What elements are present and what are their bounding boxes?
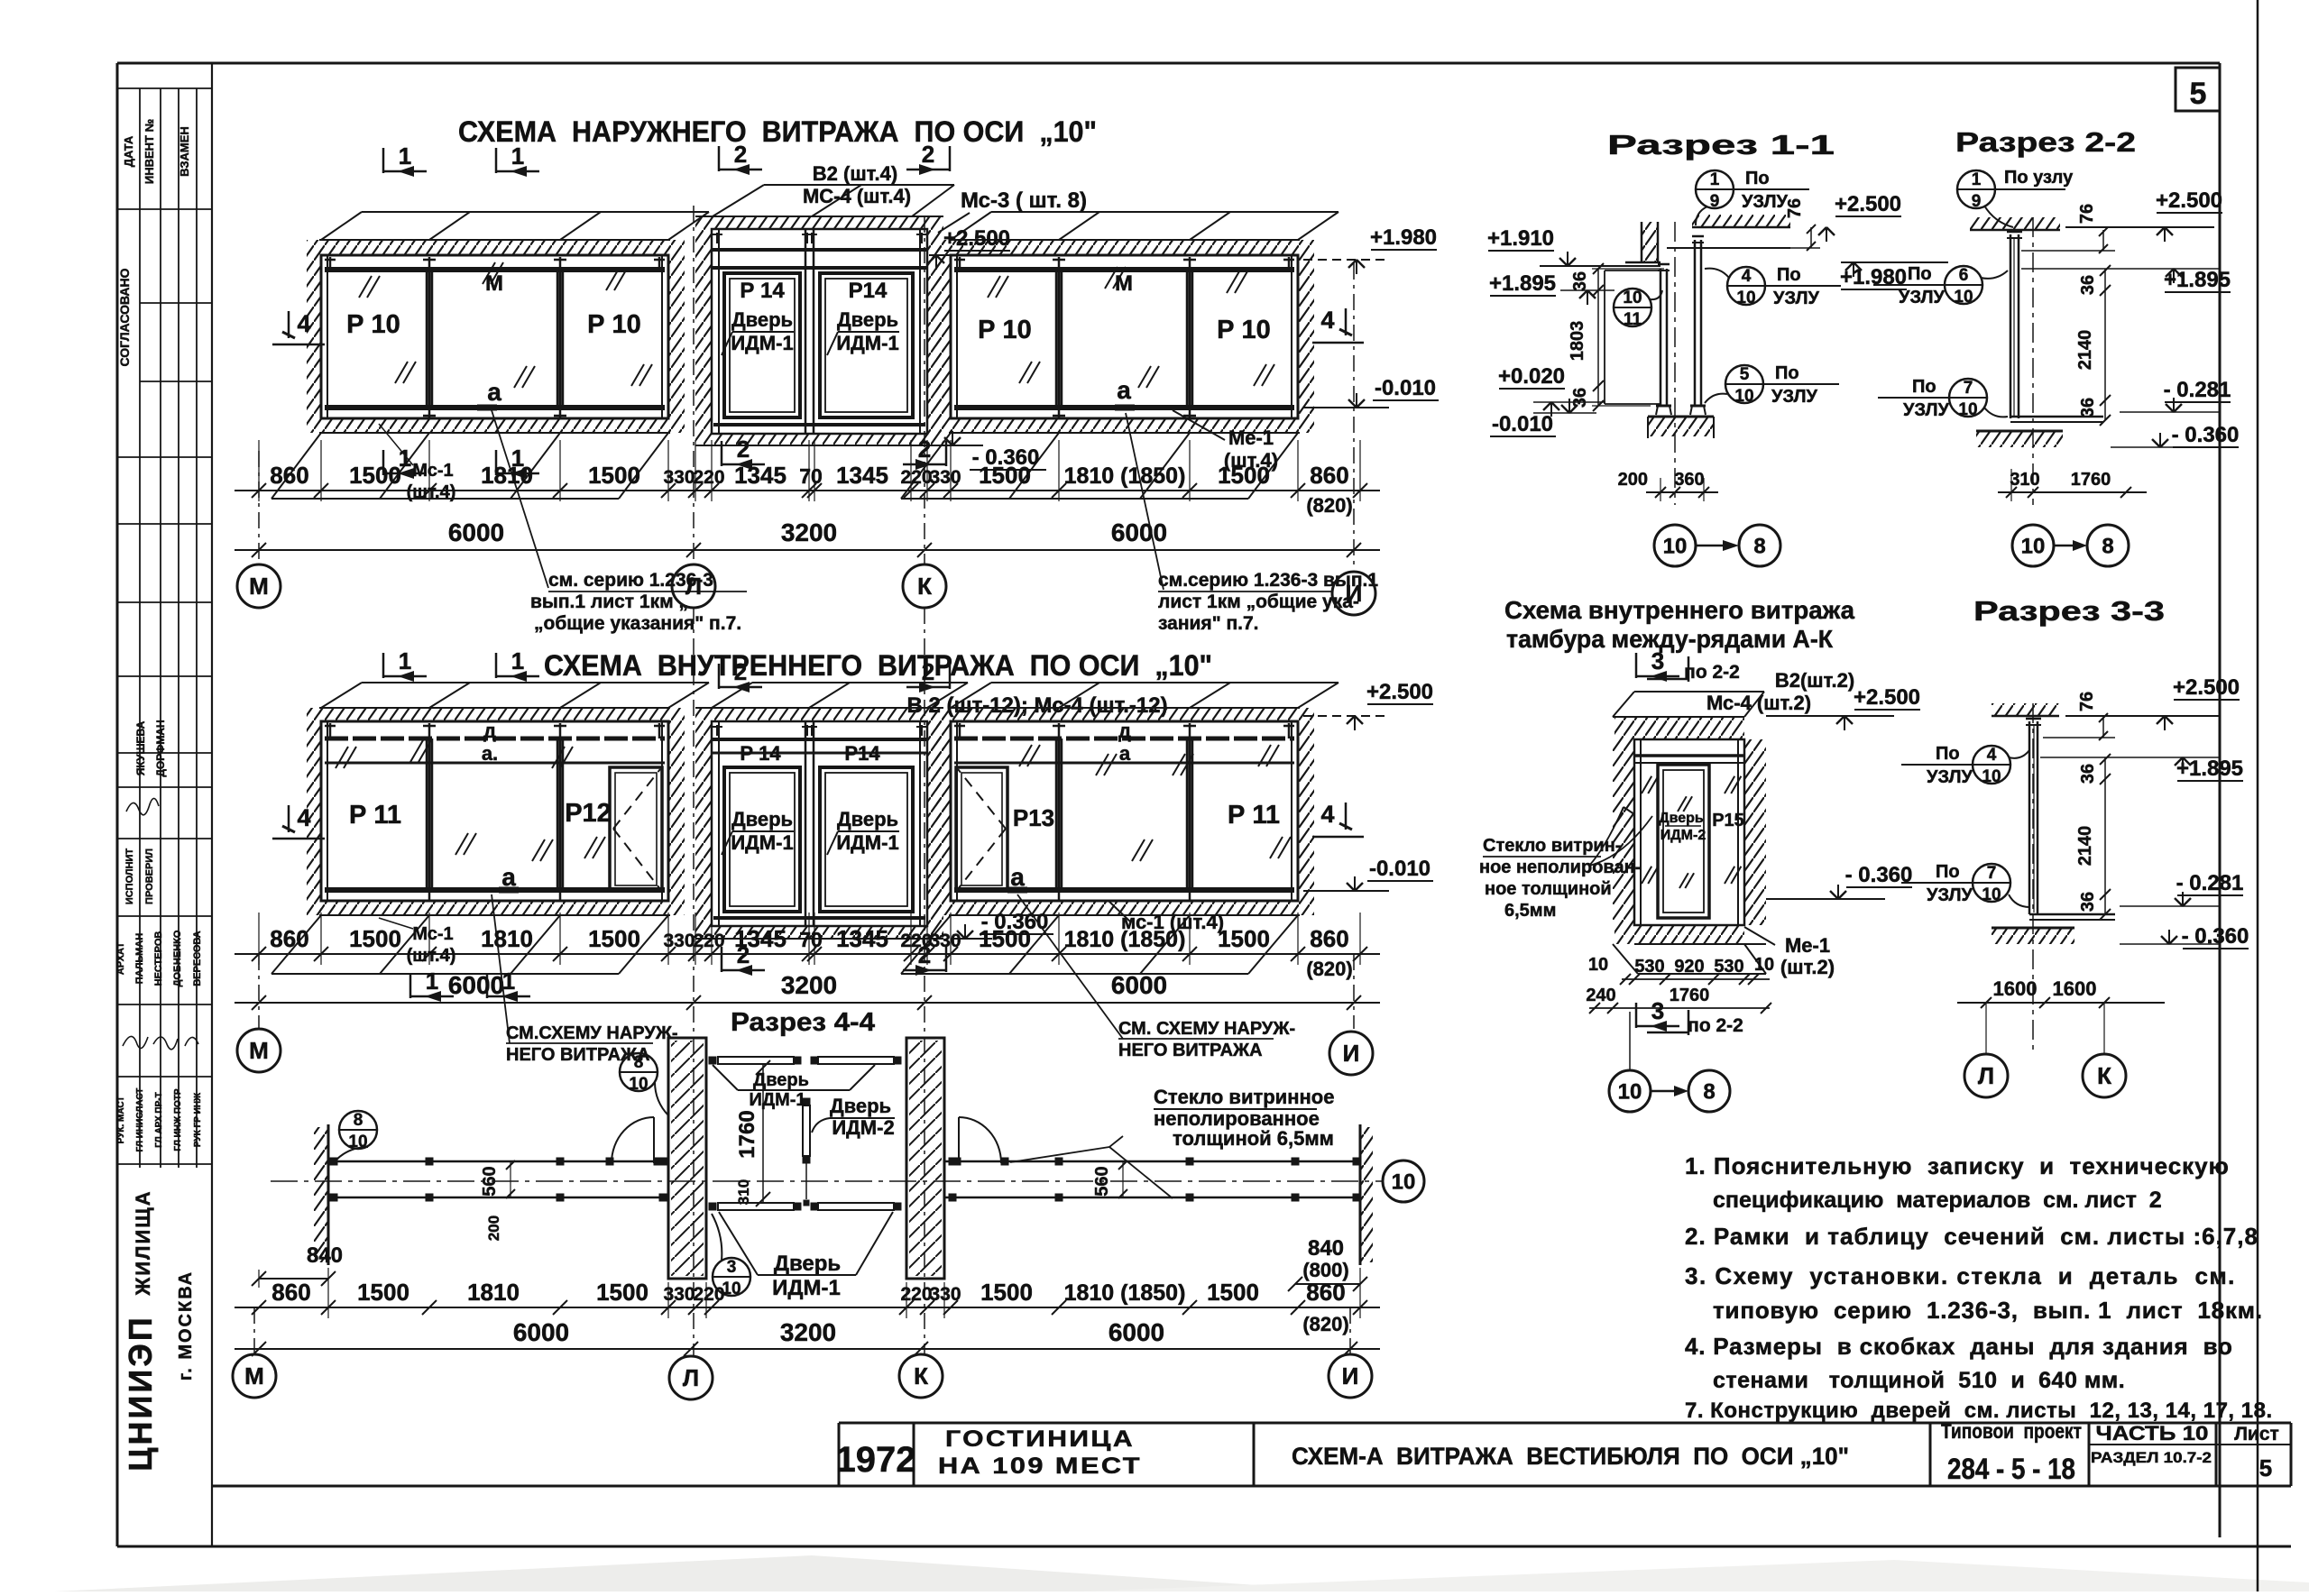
svg-text:ИДМ-1: ИДМ-1 <box>731 332 793 354</box>
svg-text:200: 200 <box>1618 470 1648 490</box>
svg-text:Мс-3 ( шт. 8): Мс-3 ( шт. 8) <box>961 188 1087 213</box>
svg-text:10: 10 <box>1618 1079 1642 1104</box>
svg-text:МС-4 (шт.4): МС-4 (шт.4) <box>803 185 911 207</box>
svg-text:10: 10 <box>1392 1169 1416 1194</box>
svg-text:ИДМ-2: ИДМ-2 <box>1660 828 1706 843</box>
svg-text:Схема внутреннего витража: Схема внутреннего витража <box>1504 596 1854 624</box>
svg-text:д: д <box>1118 720 1131 742</box>
svg-text:СХЕМА НАРУЖНЕГО ВИТРАЖА ПО: СХЕМА НАРУЖНЕГО ВИТРАЖА ПО ОСИ „10" <box>458 115 1097 148</box>
svg-text:Р 10: Р 10 <box>346 310 400 339</box>
svg-text:Типовои проект: Типовои проект <box>1941 1419 2082 1443</box>
svg-text:1500: 1500 <box>980 1279 1033 1306</box>
svg-text:Л: Л <box>683 1364 699 1391</box>
svg-text:+2.500: +2.500 <box>1835 192 1901 216</box>
svg-text:По: По <box>1775 363 1799 383</box>
svg-text:220: 220 <box>693 1284 724 1305</box>
svg-text:СХЕМ-А ВИТРАЖА ВЕСТИБЮЛЯ ПО: СХЕМ-А ВИТРАЖА ВЕСТИБЮЛЯ ПО ОСИ „10" <box>1292 1443 1849 1470</box>
svg-text:840: 840 <box>307 1243 343 1268</box>
svg-text:лист 1км „общие ука-: лист 1км „общие ука- <box>1158 592 1359 612</box>
svg-text:по 2-2: по 2-2 <box>1684 662 1740 683</box>
svg-text:3200: 3200 <box>781 971 837 999</box>
svg-text:1500: 1500 <box>1207 1279 1259 1306</box>
svg-text:4: 4 <box>1320 307 1334 334</box>
svg-text:1500: 1500 <box>349 925 401 952</box>
svg-text:ИНВЕНТ №: ИНВЕНТ № <box>143 119 156 184</box>
svg-text:860: 860 <box>271 1279 310 1306</box>
svg-text:ВЗАМЕН: ВЗАМЕН <box>178 126 191 177</box>
svg-text:10: 10 <box>1588 955 1608 975</box>
svg-text:1. Пояснительную записку и: 1. Пояснительную записку и техническую <box>1685 1152 2230 1179</box>
svg-text:220: 220 <box>900 467 932 488</box>
svg-text:9: 9 <box>1972 192 1982 211</box>
svg-text:УЗЛУ: УЗЛУ <box>1771 387 1818 407</box>
svg-text:В2 (шт.4): В2 (шт.4) <box>813 162 897 185</box>
svg-text:1500: 1500 <box>1218 925 1270 952</box>
svg-text:СОГЛАСОВАНО: СОГЛАСОВАНО <box>117 268 132 366</box>
svg-text:+2.500: +2.500 <box>1854 685 1920 710</box>
svg-text:Дверь: Дверь <box>753 1070 809 1090</box>
svg-text:По узлу: По узлу <box>2004 168 2074 188</box>
svg-text:ИСПОЛНИТ: ИСПОЛНИТ <box>124 848 135 905</box>
svg-text:6000: 6000 <box>448 518 504 546</box>
svg-text:1345: 1345 <box>734 462 787 489</box>
svg-text:1810: 1810 <box>481 462 533 489</box>
svg-text:по 2-2: по 2-2 <box>1688 1015 1743 1036</box>
svg-text:стенами толщиной 510 и 64: стенами толщиной 510 и 640 мм. <box>1713 1368 2125 1393</box>
svg-text:И: И <box>1343 1040 1360 1067</box>
svg-text:330: 330 <box>663 467 695 488</box>
svg-text:вып.1 лист 1км „: вып.1 лист 1км „ <box>530 592 688 612</box>
svg-text:1810 (1850): 1810 (1850) <box>1064 1280 1186 1306</box>
svg-text:310: 310 <box>735 1179 752 1205</box>
svg-text:РУК. МАСТ: РУК. МАСТ <box>116 1096 126 1144</box>
svg-text:Р14: Р14 <box>849 279 888 303</box>
svg-text:920: 920 <box>1674 957 1704 977</box>
svg-text:Ме-1: Ме-1 <box>1228 427 1274 449</box>
svg-text:РАЗДЕЛ 10.7-2: РАЗДЕЛ 10.7-2 <box>2091 1449 2212 1466</box>
svg-text:6000: 6000 <box>448 971 504 999</box>
svg-text:ДОРФМАН: ДОРФМАН <box>154 720 167 776</box>
svg-text:-0.010: -0.010 <box>1369 857 1430 881</box>
svg-text:+2.500: +2.500 <box>2156 188 2222 213</box>
svg-text:М: М <box>249 1037 269 1064</box>
svg-text:тамбура между-рядами А-К: тамбура между-рядами А-К <box>1506 625 1834 653</box>
svg-text:10: 10 <box>722 1280 741 1298</box>
svg-text:ВЕРЕСОВА: ВЕРЕСОВА <box>192 931 203 986</box>
svg-text:И: И <box>1346 580 1363 607</box>
svg-text:Разрез 3-3: Разрез 3-3 <box>1973 595 2165 627</box>
svg-text:ПРОВЕРИЛ: ПРОВЕРИЛ <box>144 848 155 904</box>
svg-text:4: 4 <box>297 310 310 337</box>
svg-text:ИДМ-2: ИДМ-2 <box>832 1116 894 1139</box>
svg-text:СМ.СХЕМУ НАРУЖ-: СМ.СХЕМУ НАРУЖ- <box>506 1023 678 1043</box>
svg-text:1500: 1500 <box>588 925 640 952</box>
svg-text:6000: 6000 <box>513 1318 569 1346</box>
svg-text:76: 76 <box>2077 692 2097 711</box>
svg-text:Р14: Р14 <box>844 742 880 765</box>
svg-text:10: 10 <box>1736 289 1755 307</box>
svg-text:1803: 1803 <box>1568 321 1587 362</box>
svg-text:220: 220 <box>693 931 724 951</box>
svg-text:а: а <box>487 378 501 406</box>
svg-text:(шт.4): (шт.4) <box>407 946 456 966</box>
svg-text:а: а <box>501 863 516 891</box>
svg-text:Мс-1: Мс-1 <box>412 924 453 944</box>
svg-text:(820): (820) <box>1306 494 1352 517</box>
svg-text:5: 5 <box>2190 77 2207 111</box>
svg-text:По: По <box>1745 169 1770 188</box>
svg-text:М: М <box>244 1362 264 1390</box>
svg-text:2: 2 <box>734 658 747 685</box>
svg-text:10: 10 <box>1958 400 1977 419</box>
svg-text:4: 4 <box>297 804 310 831</box>
svg-text:1810 (1850): 1810 (1850) <box>1064 463 1186 489</box>
svg-text:ГЛ АРХ ПР-Т: ГЛ АРХ ПР-Т <box>154 1092 164 1147</box>
svg-text:Л: Л <box>685 573 702 600</box>
svg-text:1500: 1500 <box>979 925 1031 952</box>
svg-text:7: 7 <box>1964 379 1973 398</box>
svg-text:г. МОСКВА: г. МОСКВА <box>176 1270 196 1380</box>
svg-text:Мс-4 (шт.2): Мс-4 (шт.2) <box>1706 692 1811 714</box>
svg-text:а: а <box>1119 742 1131 765</box>
svg-text:М: М <box>1115 271 1133 296</box>
svg-text:ЯКУШЕВА: ЯКУШЕВА <box>134 720 147 775</box>
svg-text:36: 36 <box>2078 764 2098 784</box>
svg-text:ГЛ ИНЖ ПОТР: ГЛ ИНЖ ПОТР <box>173 1088 183 1151</box>
svg-text:(шт.4): (шт.4) <box>407 482 456 502</box>
svg-text:360: 360 <box>1674 470 1704 490</box>
svg-text:Разрез 4-4: Разрез 4-4 <box>731 1008 875 1037</box>
svg-text:(шт.2): (шт.2) <box>1780 956 1835 978</box>
svg-text:36: 36 <box>2078 398 2098 417</box>
svg-text:Дверь: Дверь <box>731 308 793 331</box>
svg-text:530: 530 <box>1634 957 1664 977</box>
svg-text:36: 36 <box>1570 388 1590 408</box>
svg-text:Р 10: Р 10 <box>978 316 1032 344</box>
svg-text:330: 330 <box>929 931 961 951</box>
svg-text:6: 6 <box>1959 266 1969 285</box>
svg-text:6000: 6000 <box>1109 1318 1164 1346</box>
svg-text:+0.020: +0.020 <box>1498 364 1565 389</box>
svg-text:76: 76 <box>2077 204 2097 224</box>
svg-text:Р 14: Р 14 <box>740 742 781 765</box>
svg-text:НА 109 МЕСТ: НА 109 МЕСТ <box>938 1454 1142 1479</box>
svg-text:+1.895: +1.895 <box>1489 271 1556 296</box>
svg-text:ИДМ-1: ИДМ-1 <box>772 1276 841 1300</box>
svg-text:К: К <box>2097 1062 2111 1089</box>
svg-text:1760: 1760 <box>2071 470 2111 490</box>
svg-text:2: 2 <box>922 141 934 168</box>
svg-text:В2(шт.2): В2(шт.2) <box>1775 669 1854 692</box>
svg-text:76: 76 <box>1785 198 1805 218</box>
svg-text:- 0.360: - 0.360 <box>2182 924 2249 949</box>
svg-text:860: 860 <box>270 462 308 489</box>
svg-text:36: 36 <box>2078 275 2098 295</box>
svg-text:+1.980: +1.980 <box>1370 225 1437 250</box>
svg-text:36: 36 <box>2078 892 2098 912</box>
svg-text:Дверь: Дверь <box>837 808 898 830</box>
svg-text:ПАЛЬМАН: ПАЛЬМАН <box>134 933 145 984</box>
svg-text:ЦНИИЭП: ЦНИИЭП <box>122 1315 159 1472</box>
svg-text:1500: 1500 <box>596 1279 649 1306</box>
svg-text:8: 8 <box>634 1053 644 1072</box>
svg-text:7: 7 <box>1987 864 1997 883</box>
svg-text:560: 560 <box>480 1166 500 1196</box>
svg-text:3. Схему установки. стекла и: 3. Схему установки. стекла и деталь см. <box>1685 1262 2236 1289</box>
svg-text:Дверь: Дверь <box>774 1252 841 1276</box>
svg-text:330: 330 <box>663 931 695 951</box>
svg-text:Дверь: Дверь <box>731 808 793 830</box>
svg-text:СМ. СХЕМУ НАРУЖ-: СМ. СХЕМУ НАРУЖ- <box>1118 1019 1295 1039</box>
svg-text:ИДМ-1: ИДМ-1 <box>836 332 898 354</box>
svg-text:НЕСТЕРОВ: НЕСТЕРОВ <box>153 931 164 986</box>
svg-text:УЗЛУ: УЗЛУ <box>1773 289 1820 308</box>
svg-text:-0.010: -0.010 <box>1492 412 1553 436</box>
svg-text:УЗЛУ: УЗЛУ <box>1927 885 1973 905</box>
svg-text:2: 2 <box>737 436 750 463</box>
svg-text:3200: 3200 <box>780 1318 836 1346</box>
svg-text:(820): (820) <box>1302 1313 1348 1335</box>
svg-text:1810: 1810 <box>467 1279 520 1306</box>
svg-text:6000: 6000 <box>1111 518 1167 546</box>
svg-text:10: 10 <box>629 1075 648 1094</box>
svg-text:УЗЛУ: УЗЛУ <box>1927 767 1973 787</box>
svg-text:2. Рамки и таблицу сечений: 2. Рамки и таблицу сечений см. листы :6,… <box>1685 1223 2258 1250</box>
svg-text:Мс-1: Мс-1 <box>412 461 453 481</box>
svg-text:ГЛ ИНИСЛАСТ: ГЛ ИНИСЛАСТ <box>135 1088 145 1152</box>
svg-text:1: 1 <box>1710 170 1720 189</box>
svg-text:8: 8 <box>2102 534 2113 558</box>
svg-text:Стекло витрин-: Стекло витрин- <box>1483 836 1621 856</box>
svg-text:3: 3 <box>1651 997 1664 1024</box>
svg-text:220: 220 <box>693 467 724 488</box>
svg-text:ИДМ-1: ИДМ-1 <box>731 831 793 854</box>
svg-text:1810: 1810 <box>481 925 533 952</box>
svg-text:ное толщиной: ное толщиной <box>1485 879 1612 899</box>
svg-text:По: По <box>1912 377 1936 397</box>
svg-text:СХЕМА ВНУТРЕННЕГО ВИТРАЖА П: СХЕМА ВНУТРЕННЕГО ВИТРАЖА ПО ОСИ „10" <box>544 649 1212 682</box>
svg-text:1500: 1500 <box>1218 462 1270 489</box>
svg-text:Р 10: Р 10 <box>1217 316 1271 344</box>
svg-text:Ме-1: Ме-1 <box>1785 934 1830 957</box>
svg-text:860: 860 <box>270 925 308 952</box>
svg-text:Разрез 1-1: Разрез 1-1 <box>1607 129 1835 161</box>
svg-text:10: 10 <box>1982 767 2001 786</box>
svg-text:8: 8 <box>1753 534 1765 558</box>
svg-text:3: 3 <box>1651 647 1664 674</box>
svg-text:Р 11: Р 11 <box>1228 801 1280 830</box>
svg-text:НЕГО ВИТРАЖА: НЕГО ВИТРАЖА <box>1118 1041 1263 1060</box>
svg-text:ГОСТИНИЦА: ГОСТИНИЦА <box>945 1426 1135 1452</box>
svg-text:+1.910: +1.910 <box>1487 226 1554 251</box>
svg-text:„общие указания" п.7.: „общие указания" п.7. <box>534 613 741 634</box>
svg-text:Дверь: Дверь <box>1659 811 1704 826</box>
svg-text:10: 10 <box>1734 387 1753 406</box>
svg-text:1345: 1345 <box>734 925 787 952</box>
svg-text:По: По <box>1936 744 1960 764</box>
svg-text:К: К <box>914 1362 928 1390</box>
svg-text:толщиной 6,5мм: толщиной 6,5мм <box>1173 1127 1334 1150</box>
svg-text:- 0.281: - 0.281 <box>2176 871 2244 895</box>
svg-text:1: 1 <box>399 142 411 170</box>
svg-text:4: 4 <box>1742 267 1752 286</box>
svg-text:310: 310 <box>2010 470 2039 490</box>
svg-text:УЗЛУ: УЗЛУ <box>1903 400 1950 420</box>
svg-text:АРХАТ: АРХАТ <box>115 942 126 976</box>
svg-text:8: 8 <box>1703 1079 1715 1104</box>
svg-text:1500: 1500 <box>588 462 640 489</box>
svg-text:спецификацию материалов см.: спецификацию материалов см. лист 2 <box>1713 1188 2162 1213</box>
svg-text:284 - 5 - 18: 284 - 5 - 18 <box>1947 1453 2075 1485</box>
svg-text:+2.500: +2.500 <box>1366 680 1433 704</box>
svg-text:10: 10 <box>1623 289 1642 307</box>
svg-text:840: 840 <box>1308 1236 1344 1261</box>
svg-text:типовую серию 1.236-3, вып.: типовую серию 1.236-3, вып. 1 лист 18км. <box>1713 1297 2263 1324</box>
svg-text:10: 10 <box>1754 955 1774 975</box>
svg-text:1810 (1850): 1810 (1850) <box>1064 927 1186 952</box>
svg-text:3: 3 <box>727 1258 737 1277</box>
svg-text:240: 240 <box>1586 986 1615 1005</box>
svg-text:4: 4 <box>1320 801 1334 828</box>
svg-text:ное неполирован-: ное неполирован- <box>1479 858 1641 877</box>
svg-text:По: По <box>1777 265 1801 285</box>
svg-text:Стекло витринное: Стекло витринное <box>1154 1086 1334 1108</box>
svg-text:36: 36 <box>1570 271 1590 291</box>
svg-text:Лист: Лист <box>2234 1424 2279 1445</box>
svg-text:ДАТА: ДАТА <box>122 135 135 167</box>
svg-text:По: По <box>1936 862 1960 882</box>
svg-text:(820): (820) <box>1306 958 1352 980</box>
svg-text:1972: 1972 <box>836 1440 916 1480</box>
svg-text:1500: 1500 <box>357 1279 409 1306</box>
svg-text:Дверь: Дверь <box>830 1095 891 1117</box>
svg-text:1500: 1500 <box>979 462 1031 489</box>
svg-text:М: М <box>485 271 503 296</box>
svg-text:5: 5 <box>2259 1454 2272 1481</box>
svg-text:70: 70 <box>799 928 823 951</box>
svg-text:4. Размеры в скобках даны д: 4. Размеры в скобках даны для здания во <box>1685 1333 2233 1360</box>
svg-text:1: 1 <box>511 142 524 170</box>
svg-text:1760: 1760 <box>1670 986 1710 1005</box>
svg-text:Р 14: Р 14 <box>740 279 785 303</box>
svg-text:а.: а. <box>482 742 498 765</box>
svg-text:Р12: Р12 <box>565 799 612 828</box>
svg-text:10: 10 <box>1954 288 1973 307</box>
svg-text:ИДМ-1: ИДМ-1 <box>749 1090 805 1110</box>
svg-text:860: 860 <box>1310 462 1348 489</box>
svg-text:1345: 1345 <box>836 462 888 489</box>
svg-text:УЗЛУ: УЗЛУ <box>1742 192 1789 212</box>
svg-text:Разрез 2-2: Разрез 2-2 <box>1955 126 2136 158</box>
svg-text:10: 10 <box>2021 534 2046 558</box>
svg-text:11: 11 <box>1624 310 1642 329</box>
svg-text:560: 560 <box>1092 1166 1112 1196</box>
svg-text:1760: 1760 <box>735 1110 759 1158</box>
svg-text:ИДМ-1: ИДМ-1 <box>836 831 898 854</box>
svg-text:а: а <box>1010 863 1025 891</box>
svg-text:2140: 2140 <box>2075 330 2095 371</box>
svg-text:-0.010: -0.010 <box>1375 376 1436 400</box>
svg-text:Л: Л <box>1978 1062 1994 1089</box>
svg-text:1600: 1600 <box>2053 977 2097 1000</box>
svg-text:Дверь: Дверь <box>837 308 898 331</box>
svg-text:5: 5 <box>1740 365 1750 384</box>
svg-text:ЖИЛИЩА: ЖИЛИЩА <box>132 1189 154 1296</box>
svg-text:2: 2 <box>734 141 747 168</box>
svg-text:д: д <box>483 720 496 742</box>
svg-text:3200: 3200 <box>781 518 837 546</box>
svg-text:1: 1 <box>426 968 438 995</box>
svg-text:6000: 6000 <box>1111 971 1167 999</box>
svg-text:530: 530 <box>1714 957 1743 977</box>
svg-text:- 0.360: - 0.360 <box>2172 423 2240 447</box>
svg-text:8: 8 <box>354 1111 363 1130</box>
svg-text:И: И <box>1342 1362 1359 1390</box>
svg-text:РУК ГР ИНЖ: РУК ГР ИНЖ <box>193 1092 203 1147</box>
svg-text:2140: 2140 <box>2075 826 2095 867</box>
svg-text:10: 10 <box>1663 534 1688 558</box>
svg-text:1600: 1600 <box>1993 977 2038 1000</box>
svg-text:Р 10: Р 10 <box>587 310 641 339</box>
svg-text:зания" п.7.: зания" п.7. <box>1158 613 1259 634</box>
svg-text:860: 860 <box>1310 925 1348 952</box>
svg-text:1: 1 <box>511 647 524 674</box>
svg-text:1345: 1345 <box>836 925 888 952</box>
svg-text:220: 220 <box>900 931 932 951</box>
svg-text:6,5мм: 6,5мм <box>1504 901 1556 921</box>
svg-text:По: По <box>1908 264 1932 284</box>
svg-text:М: М <box>249 573 269 600</box>
svg-text:1500: 1500 <box>349 462 401 489</box>
svg-text:Р15: Р15 <box>1712 811 1744 830</box>
svg-text:а: а <box>1117 376 1131 404</box>
svg-text:Р13: Р13 <box>1013 804 1054 831</box>
svg-text:1: 1 <box>1972 170 1982 189</box>
svg-text:330: 330 <box>929 467 961 488</box>
svg-text:9: 9 <box>1710 192 1720 211</box>
svg-text:1: 1 <box>399 647 411 674</box>
svg-text:70: 70 <box>799 464 823 488</box>
svg-text:4: 4 <box>1987 746 1997 765</box>
svg-text:+2.500: +2.500 <box>943 226 1010 251</box>
svg-text:330: 330 <box>929 1284 961 1305</box>
svg-text:+2.500: +2.500 <box>2173 675 2240 700</box>
svg-text:860: 860 <box>1306 1279 1345 1306</box>
svg-text:УЗЛУ: УЗЛУ <box>1899 288 1946 307</box>
svg-text:10: 10 <box>1982 885 2001 904</box>
svg-text:ДОБНЕНКО: ДОБНЕНКО <box>172 930 183 986</box>
svg-text:К: К <box>917 573 932 600</box>
svg-text:ЧАСТЬ 10: ЧАСТЬ 10 <box>2096 1422 2209 1445</box>
svg-text:2: 2 <box>922 658 934 685</box>
svg-text:220: 220 <box>900 1284 932 1305</box>
svg-text:Р 11: Р 11 <box>349 801 401 830</box>
svg-text:330: 330 <box>663 1284 695 1305</box>
svg-text:200: 200 <box>485 1215 502 1241</box>
